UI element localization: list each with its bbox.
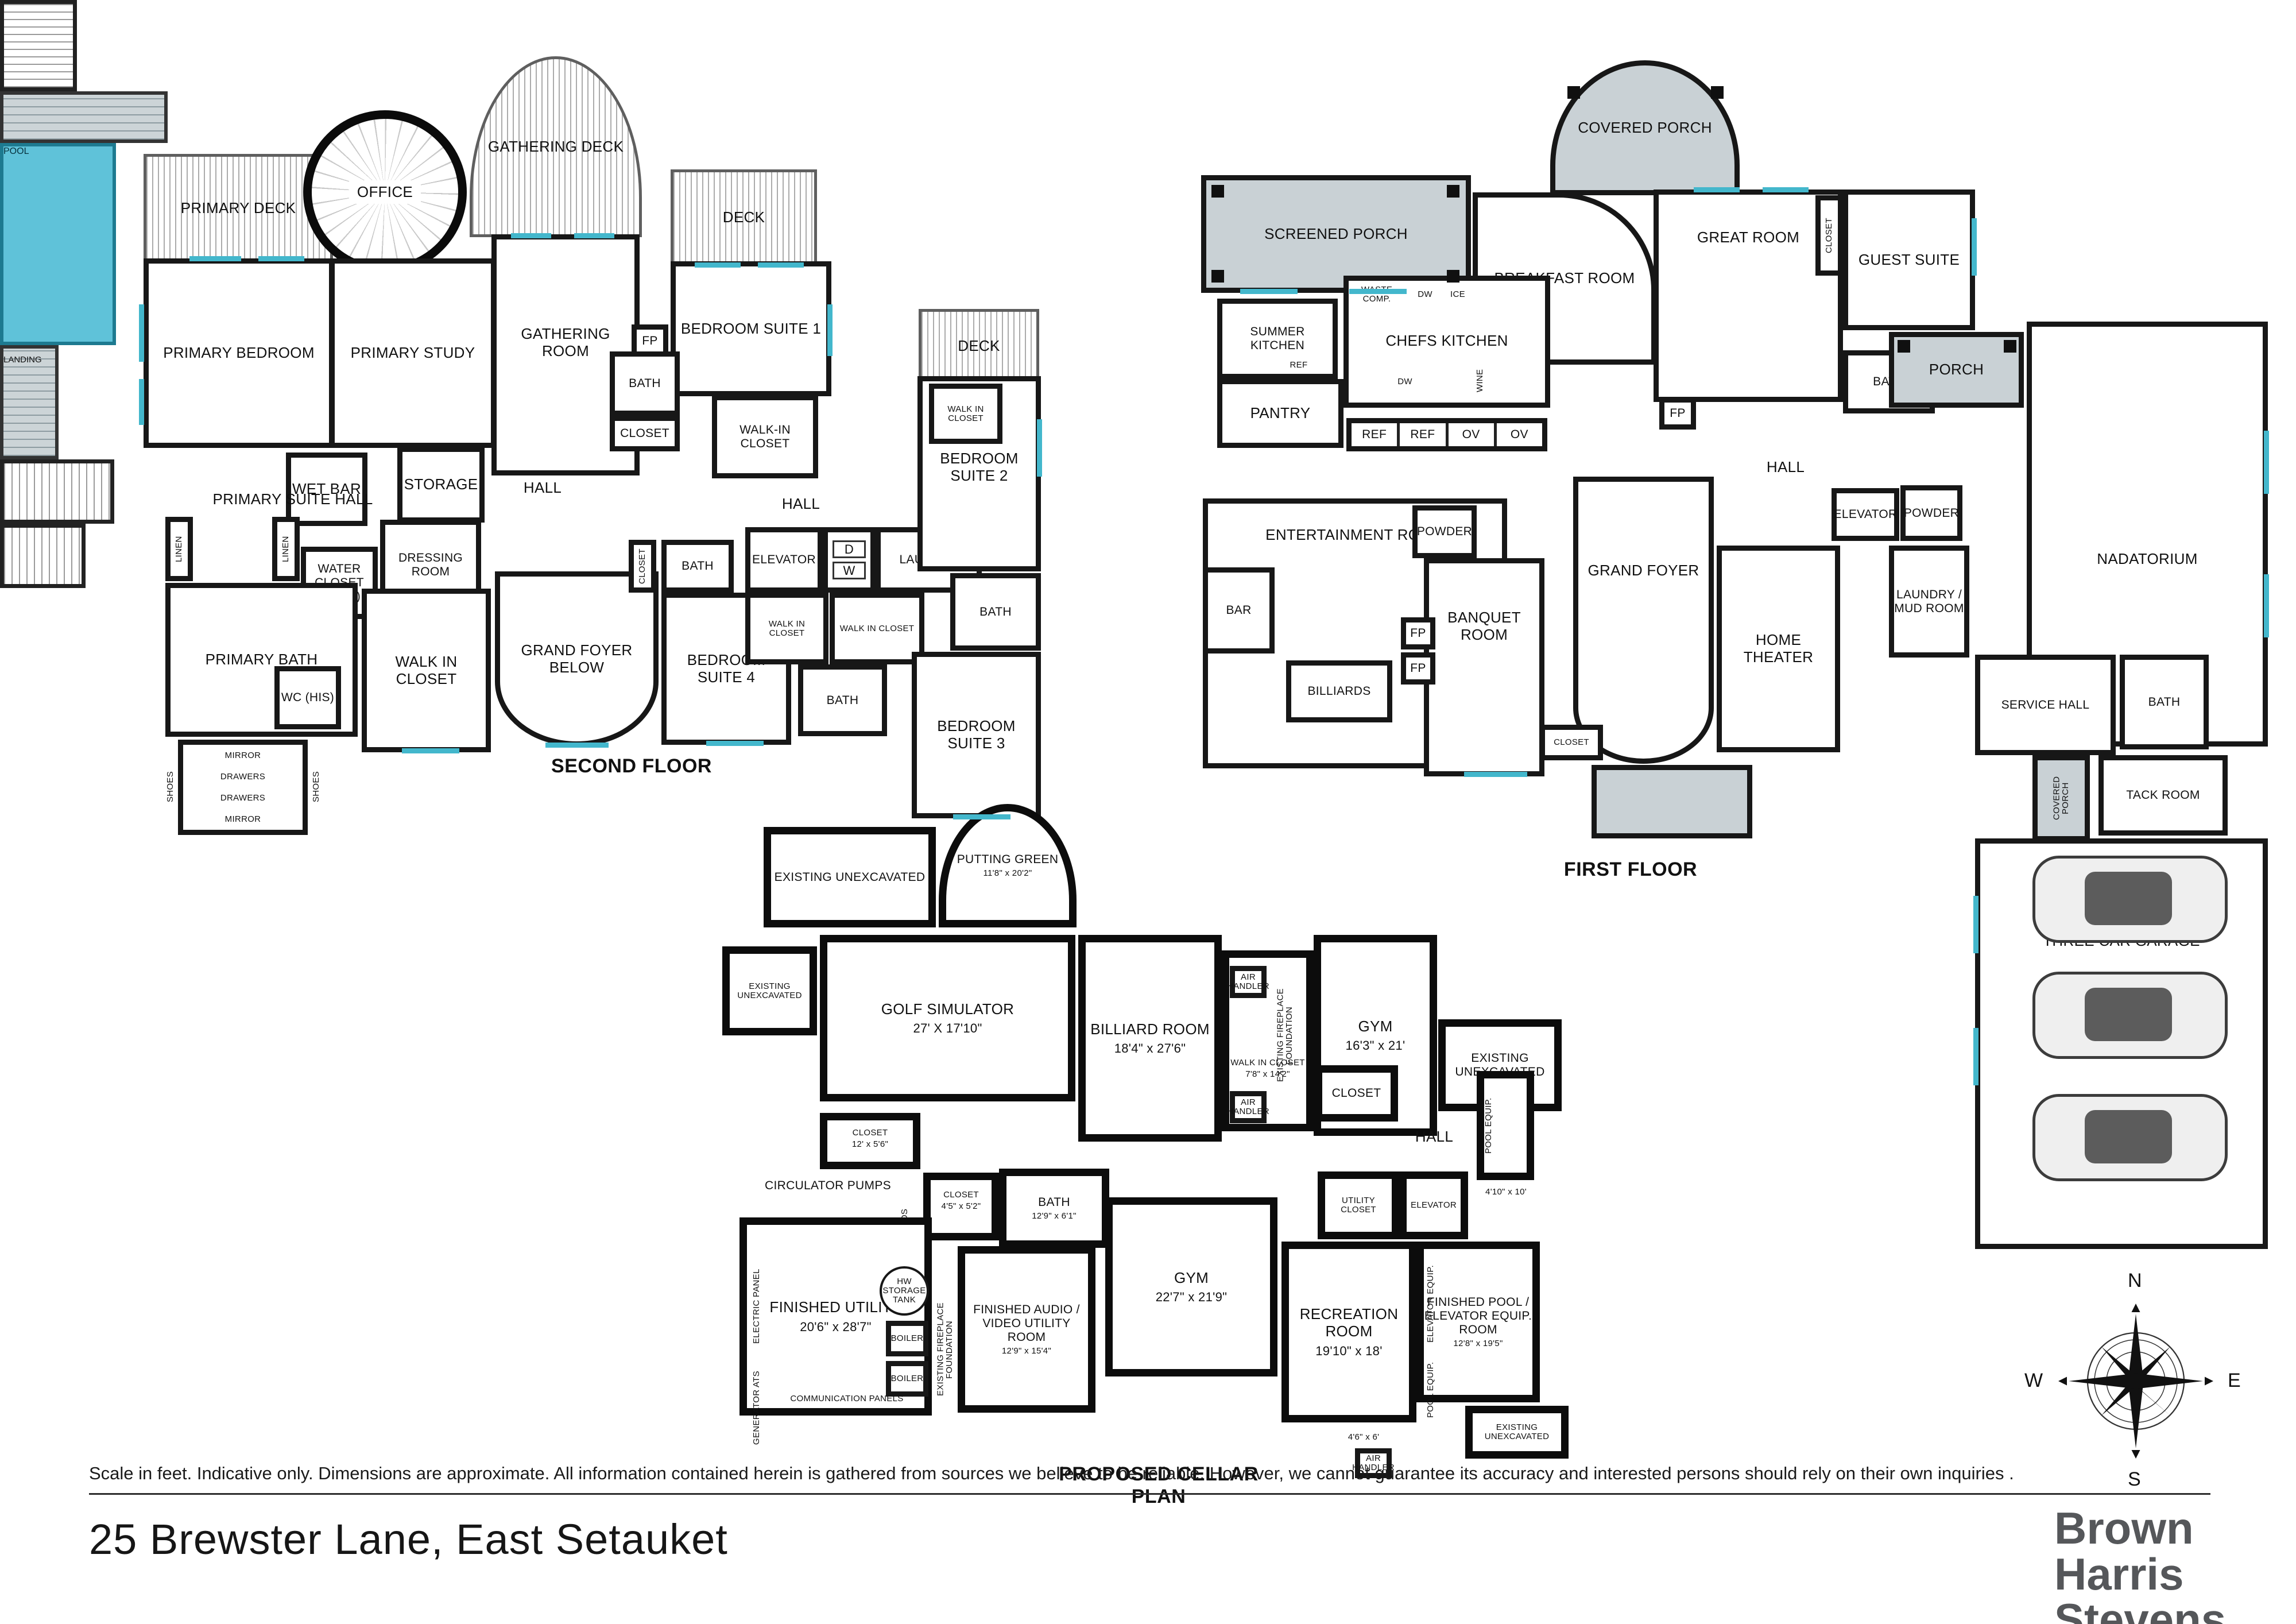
room-great-room: GREAT ROOM [1654,190,1843,402]
label-wine: WINE [1470,362,1490,400]
room-bath-cellar: BATH 12'9" x 6'1" [999,1169,1109,1248]
label-fireplace-foundation-1: EXISTING FIREPLACE FOUNDATION [1270,969,1300,1101]
room-label: RECREATION ROOM [1289,1306,1409,1340]
label-hall-1f: HALL [1745,455,1826,480]
room-laundry-mud: LAUNDRY / MUD ROOM [1889,546,1969,658]
porch-column [1898,340,1910,353]
label-ref-summer: REF [1280,355,1317,376]
logo-line-2: Harris [2054,1552,2226,1598]
room-bedroom-suite-1: BEDROOM SUITE 1 [671,261,831,396]
label-room-4-6: 4'6" x 6' [1326,1428,1401,1447]
room-tack-room: TACK ROOM [2098,755,2228,836]
window-marker [695,262,741,268]
compass-south: S [2128,1468,2141,1491]
window-marker [511,233,551,238]
room-elevator-1f: ELEVATOR [1832,488,1899,541]
room-dims: 12'9" x 6'1" [1032,1211,1077,1221]
room-unexcavated-4: EXISTING UNEXCAVATED [1465,1406,1569,1459]
label-communication-panels: COMMUNICATION PANELS [778,1385,916,1413]
label-elevator-equip: ELEVATOR EQUIP. [1419,1255,1442,1352]
window-marker [1240,289,1298,294]
room-gym-west: GYM 22'7" x 21'9" [1105,1197,1277,1376]
window-marker [1037,419,1042,477]
room-putting-green: PUTTING GREEN 11'8" x 20'2" [939,804,1077,927]
car-icon [2032,856,2228,943]
label-generator-ats: GENERATOR ATS [744,1362,769,1454]
room-elevator-2f: ELEVATOR [745,527,823,593]
label-shoes-right: SHOES [309,747,324,827]
label-waste-comp: WASTE COMP. [1347,285,1407,304]
window-marker [189,256,241,261]
fireplace-great-room: FP [1659,397,1696,430]
room-bath-suite-1: BATH [610,351,680,416]
air-handler-1: AIR HANDLER [1230,966,1267,998]
window-marker [1973,1028,1978,1085]
room-office: OFFICE [303,110,467,274]
room-closet-small: CLOSET 4'5" x 5'2" [923,1173,999,1240]
billiards-table: BILLIARDS [1286,660,1392,722]
room-primary-study: PRIMARY STUDY [330,258,496,448]
window-marker [139,379,144,425]
room-washer-dryer: D W [823,527,876,593]
room-dims: 12'8" x 19'5" [1453,1339,1503,1348]
car-cabin [2085,1110,2172,1164]
room-bedroom-suite-3: BEDROOM SUITE 3 [912,652,1041,818]
label-hall-cellar: HALL [1394,1124,1474,1150]
porch-column [1447,270,1459,283]
label-ref-2: REF [1397,423,1445,446]
label-pool-equip-1-dims: 4'10" x 10' [1463,1182,1549,1202]
room-bar: BAR [1203,567,1275,654]
kitchen-stairs [0,91,168,143]
compass-rose-icon: N S W E [2050,1295,2222,1467]
room-landing: LANDING [0,345,59,459]
room-label: PUTTING GREEN [957,853,1059,867]
room-linen-1: LINEN [165,517,193,581]
window-marker [1349,289,1407,294]
room-closet-stair: CLOSET 12' x 5'6" [820,1113,920,1169]
label-washer: W [833,562,866,579]
room-dims: 20'6" x 28'7" [800,1320,872,1334]
room-powder-west: POWDER [1412,505,1477,558]
room-deck-ne: DECK [671,169,817,266]
window-marker [258,256,304,261]
label-electric-panel: ELECTRIC PANEL [744,1252,769,1361]
room-label: GOLF SIMULATOR [881,1001,1015,1018]
room-bath-suite-4: BATH [661,540,734,593]
room-finished-av: FINISHED AUDIO / VIDEO UTILITY ROOM 12'9… [958,1246,1095,1413]
porch-column [1211,185,1224,198]
window-marker [1973,896,1978,953]
room-deck-east: DECK [919,309,1039,384]
window-marker [1464,772,1527,777]
divider-rule [89,1493,2210,1495]
room-walk-in-closet-primary: WALK IN CLOSET [362,589,491,752]
room-pantry: PANTRY [1217,379,1343,448]
room-billiard: BILLIARD ROOM 18'4" x 27'6" [1078,935,1222,1142]
label-ov-1: OV [1446,423,1494,446]
label-pool-equip-2: POOL EQUIP. [1419,1355,1442,1424]
window-marker [1694,187,1740,192]
room-dims: 22'7" x 21'9" [1156,1290,1228,1304]
logo-line-3: Stevens [2054,1597,2226,1624]
room-service-hall: SERVICE HALL [1975,655,2116,755]
room-grand-foyer: GRAND FOYER [1573,477,1714,764]
room-dims: 12'9" x 15'4" [1002,1346,1051,1356]
label-drawers-left: DRAWERS [220,772,265,782]
room-walk-in-closet-b: WALK IN CLOSET [830,593,924,664]
room-bath-suite-2: BATH [950,573,1041,651]
entry-porch [1592,765,1752,838]
cellar-stairs-east [0,524,86,588]
room-wc-his: WC (HIS) [274,666,341,729]
room-label: BILLIARD ROOM [1090,1021,1210,1038]
label-mirror-bottom: MIRROR [225,815,261,824]
hw-storage-tank: HW STORAGE TANK [880,1266,929,1316]
room-golf-simulator: GOLF SIMULATOR 27' X 17'10" [820,935,1075,1101]
porch-column [1447,185,1459,198]
room-dims: 19'10" x 18' [1315,1344,1382,1358]
window-marker [1972,218,1977,276]
window-marker [2264,431,2269,494]
label-fireplace-foundation-2: EXISTING FIREPLACE FOUNDATION [931,1286,959,1413]
label-dryer: D [833,540,866,558]
car-cabin [2085,988,2172,1042]
cellar-stairs-west [0,459,114,524]
room-walk-in-closet-1: WALK-IN CLOSET [712,395,818,478]
room-banquet: BANQUET ROOM [1424,558,1544,776]
room-guest-suite: GUEST SUITE [1843,190,1975,330]
compass-east: E [2228,1370,2241,1392]
window-marker [827,304,833,356]
room-vanity: MIRROR DRAWERS DRAWERS MIRROR [178,740,308,835]
room-pool-equip-1: POOL EQUIP. [1477,1071,1534,1180]
room-closet-guest: CLOSET [1815,195,1843,276]
room-bath-service: BATH [2120,655,2209,749]
title-first-floor: FIRST FLOOR [1544,857,1717,882]
porch-column [2004,340,2016,353]
label-drawers-right: DRAWERS [220,794,265,803]
label-circulator-pumps: CIRCULATOR PUMPS [759,1171,897,1200]
room-unexcavated-1: EXISTING UNEXCAVATED [764,827,936,927]
label-hall-center: HALL [505,475,580,501]
room-unexcavated-2: EXISTING UNEXCAVATED [722,946,817,1035]
label-ice: ICE [1442,285,1473,304]
pool: POOL [0,143,116,345]
room-label: BATH [1038,1196,1070,1209]
room-walk-in-closet-a: WALK IN CLOSET [745,593,828,664]
room-powder-east: POWDER [1900,485,1962,541]
label-ov-2: OV [1494,423,1542,446]
car-cabin [2085,872,2172,926]
compass-svg [2050,1295,2222,1467]
porch-column [1567,86,1580,99]
room-label: GYM [1358,1018,1392,1035]
window-marker [706,741,764,746]
room-label: OFFICE [349,180,421,204]
room-gathering-deck: GATHERING DECK [470,56,642,237]
room-home-theater: HOME THEATER [1717,546,1840,752]
window-marker [574,233,614,238]
room-recreation: RECREATION ROOM 19'10" x 18' [1281,1242,1416,1422]
window-marker [545,743,609,748]
label-mirror-top: MIRROR [225,751,261,760]
appliance-strip: REF REF OV OV [1346,418,1547,451]
page-title-address: 25 Brewster Lane, East Setauket [89,1515,728,1564]
label-hall-east: HALL [764,492,838,517]
car-icon [2032,972,2228,1059]
fireplace-1: FP [1401,617,1435,649]
compass-west: W [2024,1370,2043,1392]
label-dw-2: DW [1389,372,1420,392]
compass-north: N [2128,1270,2142,1292]
room-grand-foyer-below: GRAND FOYER BELOW [495,571,659,747]
fireplace-2: FP [1401,652,1435,685]
window-marker [139,304,144,362]
room-primary-bedroom: PRIMARY BEDROOM [144,258,334,448]
room-closet-suite-4: CLOSET [629,540,656,593]
room-closet-hall: CLOSET [610,416,680,451]
boiler-1: BOILER [886,1321,928,1356]
room-bath-center: BATH [798,664,887,736]
room-summer-kitchen: SUMMER KITCHEN [1217,299,1338,379]
disclaimer-text: Scale in feet. Indicative only. Dimensio… [89,1463,2014,1484]
floor-plan-sheet: PRIMARY DECK OFFICE GATHERING DECK DECK … [0,0,2296,1624]
window-marker [953,814,1010,819]
room-label: GYM [1174,1270,1209,1287]
room-label: CLOSET [943,1190,979,1200]
room-label: CLOSET [853,1128,888,1138]
room-elevator-cellar: ELEVATOR [1399,1171,1468,1239]
label-ref-1: REF [1352,423,1397,446]
window-marker [758,262,804,268]
room-closet-hall-cellar: CLOSET [1315,1065,1398,1122]
label-shoes-left: SHOES [163,747,178,827]
room-covered-porch-side: COVERED PORCH [2032,755,2090,841]
room-dims: 11'8" x 20'2" [983,868,1032,878]
brown-harris-stevens-logo: Brown Harris Stevens [2054,1506,2226,1624]
label-primary-suite-hall: PRIMARY SUITE HALL [172,487,413,512]
back-stairs [0,0,77,91]
room-linen-2: LINEN [272,517,300,581]
porch-column [1711,86,1724,99]
window-marker [402,748,459,753]
porch-column [1211,270,1224,283]
room-walk-in-closet-2: WALK IN CLOSET [929,384,1002,444]
car-icon [2032,1094,2228,1181]
room-label: FINISHED AUDIO / VIDEO UTILITY ROOM [965,1303,1088,1344]
air-handler-2: AIR HANDLER [1230,1091,1267,1123]
label-dw-1: DW [1410,285,1441,304]
room-covered-porch: COVERED PORCH [1550,60,1740,195]
window-marker [1763,187,1809,192]
room-dims: 16'3" x 21' [1346,1038,1406,1053]
room-dims: 27' X 17'10" [913,1021,982,1035]
room-utility-closet: UTILITY CLOSET [1318,1171,1399,1239]
room-dims: 12' x 5'6" [852,1139,888,1149]
room-dims: 18'4" x 27'6" [1114,1041,1186,1055]
window-marker [2264,574,2269,637]
room-closet-foyer: CLOSET [1540,725,1603,760]
room-dims: 4'5" x 5'2" [942,1201,981,1211]
title-second-floor: SECOND FLOOR [534,753,729,779]
logo-line-1: Brown [2054,1506,2226,1552]
